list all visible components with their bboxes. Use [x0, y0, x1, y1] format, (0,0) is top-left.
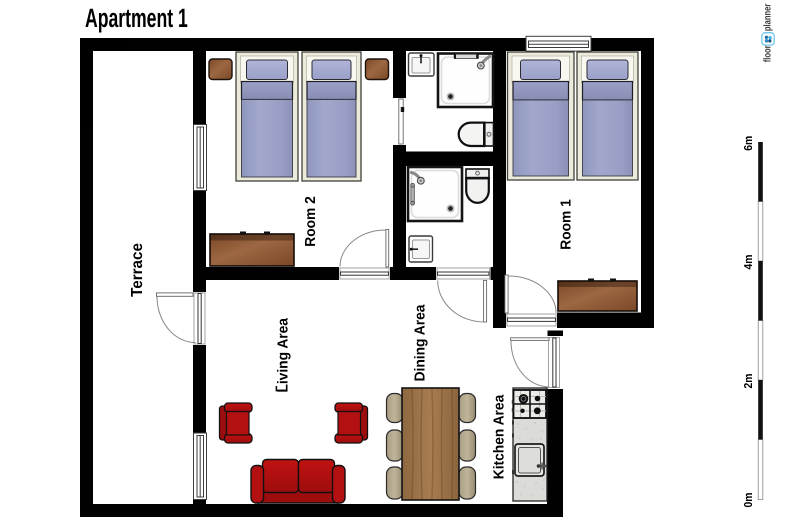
svg-text:Terrace: Terrace	[129, 243, 146, 297]
svg-text:0m: 0m	[743, 493, 755, 508]
svg-text:Kitchen Area: Kitchen Area	[491, 394, 507, 479]
svg-text:Room 1: Room 1	[559, 199, 575, 250]
svg-text:4m: 4m	[743, 255, 755, 270]
svg-text:6m: 6m	[743, 136, 755, 151]
svg-text:Apartment 1: Apartment 1	[85, 3, 188, 33]
svg-text:Room 2: Room 2	[303, 196, 319, 247]
svg-text:Living Area: Living Area	[275, 317, 291, 392]
svg-text:floor: floor	[763, 45, 774, 62]
svg-text:2m: 2m	[743, 374, 755, 389]
svg-text:Dining Area: Dining Area	[413, 304, 429, 382]
svg-text:planner: planner	[763, 4, 774, 32]
